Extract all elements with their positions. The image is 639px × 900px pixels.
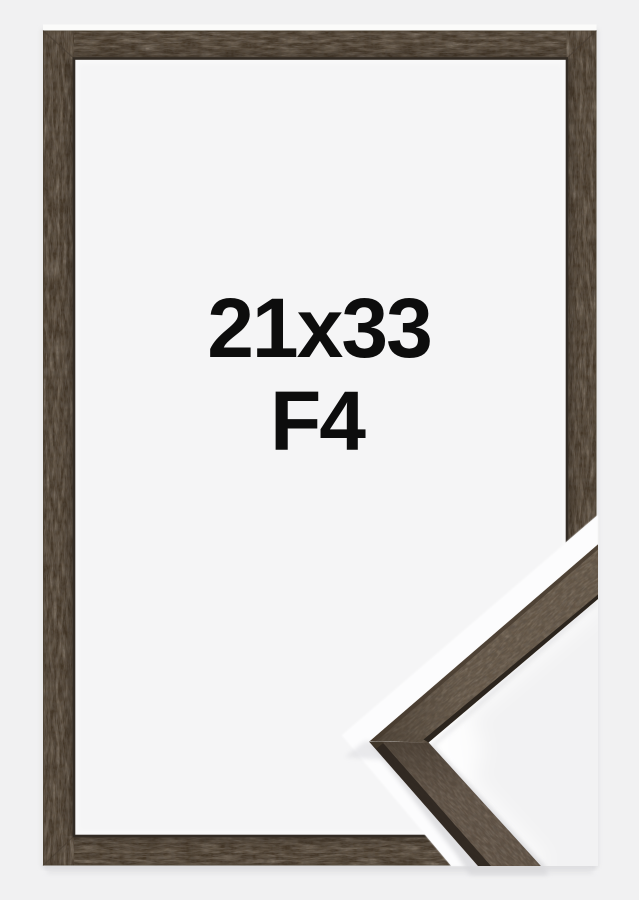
svg-text:F4: F4 [270,374,366,468]
svg-text:21x33: 21x33 [207,281,431,375]
